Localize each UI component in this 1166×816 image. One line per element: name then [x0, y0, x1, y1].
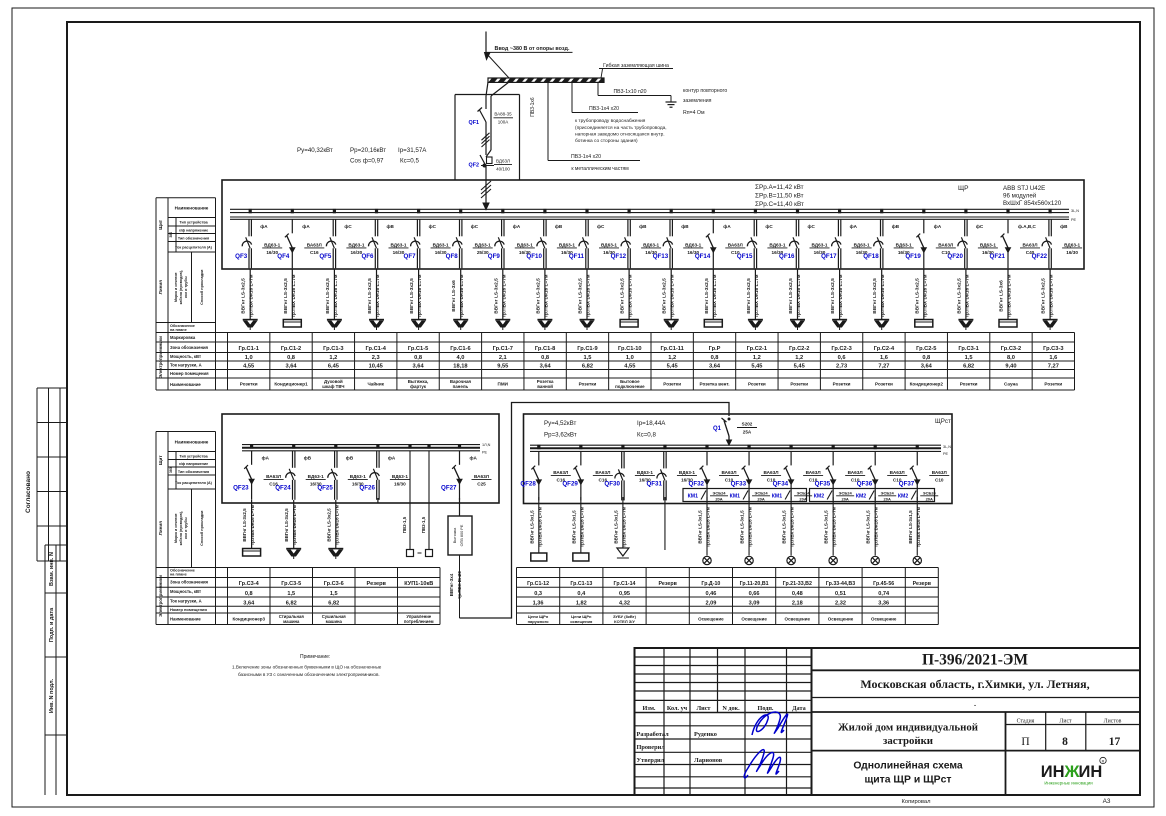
svg-text:тр.ПВХ Dн16 L=7м: тр.ПВХ Dн16 L=7м — [916, 506, 921, 547]
svg-text:Гр.С2-3: Гр.С2-3 — [831, 346, 851, 352]
svg-text:ПВ3-1х4 х20: ПВ3-1х4 х20 — [589, 106, 619, 112]
svg-text:ВВГнг LS-3х2,5: ВВГнг LS-3х2,5 — [872, 278, 878, 314]
svg-text:18,18: 18,18 — [453, 364, 467, 370]
svg-text:ВВГнг LS-3х2,5: ВВГнг LS-3х2,5 — [326, 508, 331, 542]
svg-text:тр.ПВХ Dн16 L=7м: тр.ПВХ Dн16 L=7м — [880, 274, 886, 317]
svg-text:ВВГнг LS-3х6: ВВГнг LS-3х6 — [999, 280, 1005, 312]
svg-text:кол и трубы: кол и трубы — [184, 276, 188, 298]
svg-text:ВВГнг LS-3х2,5: ВВГнг LS-3х2,5 — [535, 278, 541, 314]
svg-text:ВВГнг LS-3х1,5: ВВГнг LS-3х1,5 — [529, 510, 534, 544]
svg-text:ВхШхГ 854х560х120: ВхШхГ 854х560х120 — [1003, 200, 1062, 207]
svg-text:ВД63-1: ВД63-1 — [308, 474, 324, 479]
svg-text:ВА63Л: ВА63Л — [932, 470, 947, 475]
svg-text:Cos ф=0,97: Cos ф=0,97 — [350, 158, 384, 165]
svg-text:тр.ПВХ Dн16 L=7м: тр.ПВХ Dн16 L=7м — [543, 274, 549, 317]
svg-text:Согласовано: Согласовано — [25, 471, 32, 513]
svg-text:0,3: 0,3 — [534, 591, 542, 597]
svg-text:подключение: подключение — [615, 384, 645, 389]
svg-text:ΣРр.В=11,50 кВт: ΣРр.В=11,50 кВт — [755, 193, 804, 200]
svg-text:Зона обозначения: Зона обозначения — [170, 345, 209, 350]
svg-text:Гр.С3-6: Гр.С3-6 — [324, 581, 344, 587]
svg-text:тр.ПВХ Dн16 L=7м: тр.ПВХ Dн16 L=7м — [874, 506, 879, 547]
svg-text:фС: фС — [344, 223, 352, 229]
svg-text:QF16: QF16 — [779, 253, 795, 260]
svg-text:(присоединяется на часть трубо: (присоединяется на часть трубопровода, — [575, 125, 667, 131]
svg-text:фВ: фВ — [1060, 223, 1068, 229]
svg-text:16/30: 16/30 — [1066, 250, 1078, 255]
svg-text:2,73: 2,73 — [836, 364, 847, 370]
svg-text:3,36: 3,36 — [878, 600, 889, 606]
svg-text:фС: фС — [471, 223, 479, 229]
svg-text:QF17: QF17 — [821, 253, 837, 260]
svg-text:КМ2: КМ2 — [814, 494, 824, 500]
svg-text:заземления: заземления — [683, 98, 712, 104]
svg-text:0,8: 0,8 — [414, 355, 422, 361]
svg-text:0,8: 0,8 — [541, 355, 549, 361]
svg-text:Гр.С2-4: Гр.С2-4 — [874, 346, 895, 352]
svg-text:Лист: Лист — [1059, 718, 1072, 724]
svg-text:х/ф напряжение: х/ф напряжение — [179, 229, 208, 233]
svg-text:0,51: 0,51 — [835, 591, 846, 597]
svg-text:Гр.С1-7: Гр.С1-7 — [493, 346, 513, 352]
svg-text:Мощность, кВт: Мощность, кВт — [170, 589, 201, 594]
svg-text:КМ1: КМ1 — [730, 494, 740, 500]
svg-text:QF21: QF21 — [990, 253, 1006, 260]
svg-text:0,8: 0,8 — [711, 355, 719, 361]
svg-text:ВВГнг LS-3х2,5: ВВГнг LS-3х2,5 — [409, 278, 415, 314]
svg-text:машина: машина — [283, 619, 300, 624]
svg-text:0,74: 0,74 — [878, 591, 890, 597]
svg-text:20А: 20А — [841, 497, 848, 502]
svg-text:ВД63-1: ВД63-1 — [433, 242, 449, 247]
svg-text:П-396/2021-ЭМ: П-396/2021-ЭМ — [922, 652, 1028, 669]
svg-text:Гр.С2-2: Гр.С2-2 — [789, 346, 809, 352]
svg-text:фС: фС — [597, 223, 605, 229]
svg-text:Розетки: Розетки — [748, 382, 766, 387]
svg-text:тр.ПВХ Dн16 L=7м: тр.ПВХ Dн16 L=7м — [628, 274, 634, 317]
svg-text:панель: панель — [453, 384, 469, 389]
svg-text:ВВГнг LS-3х2,5: ВВГнг LS-3х2,5 — [367, 278, 373, 314]
svg-text:ВД63-1: ВД63-1 — [348, 242, 364, 247]
svg-text:ВД63-1: ВД63-1 — [350, 474, 366, 479]
svg-text:6,45: 6,45 — [328, 364, 339, 370]
svg-text:ВА63Л: ВА63Л — [595, 470, 610, 475]
svg-text:QF4: QF4 — [277, 253, 290, 260]
svg-text:тр.ПВХ Dн16 L=7м: тр.ПВХ Dн16 L=7м — [790, 506, 795, 547]
svg-text:ВВГнг LS-3х2,5: ВВГнг LS-3х2,5 — [1041, 278, 1047, 314]
svg-text:ВВГнг LS-3х1,5: ВВГнг LS-3х1,5 — [824, 510, 829, 544]
svg-text:ВВГнг LS-3х2,5: ВВГнг LS-3х2,5 — [578, 278, 584, 314]
svg-text:х/ф напряжение: х/ф напряжение — [179, 462, 208, 466]
svg-text:ЭСБ24: ЭСБ24 — [712, 491, 726, 496]
svg-text:Маркировка: Маркировка — [170, 335, 196, 340]
svg-text:фВ: фВ — [387, 223, 395, 229]
svg-text:R: R — [1102, 760, 1105, 764]
svg-text:тр.ПВХ Dн16 L=7м: тр.ПВХ Dн16 L=7м — [796, 274, 802, 317]
svg-text:Гр.С1-6: Гр.С1-6 — [450, 346, 470, 352]
svg-text:Розетки: Розетки — [833, 382, 851, 387]
svg-text:QF15: QF15 — [737, 253, 753, 260]
svg-text:ВВГнг LS-3х1,5: ВВГнг LS-3х1,5 — [740, 510, 745, 544]
svg-text:QF8: QF8 — [446, 253, 459, 260]
svg-text:QF18: QF18 — [863, 253, 879, 260]
svg-text:Розетки: Розетки — [960, 382, 978, 387]
svg-text:Гр.С1-14: Гр.С1-14 — [614, 581, 636, 587]
svg-text:Наименование: Наименование — [170, 382, 201, 387]
svg-text:базисными в УЗ с означенным: базисными в УЗ с означенным обозначением… — [238, 672, 380, 677]
svg-text:Q1: Q1 — [713, 426, 722, 432]
svg-text:Розетки: Розетки — [790, 382, 808, 387]
svg-text:контур повторного: контур повторного — [683, 88, 727, 94]
svg-text:тр.ПВХ Dн16 L=7м: тр.ПВХ Dн16 L=7м — [832, 506, 837, 547]
svg-text:Гр.С1-10: Гр.С1-10 — [618, 346, 642, 352]
svg-text:Гр.С1-9: Гр.С1-9 — [577, 346, 597, 352]
svg-text:0,48: 0,48 — [792, 591, 803, 597]
svg-text:2,18: 2,18 — [792, 600, 803, 606]
svg-text:Однолинейная схема: Однолинейная схема — [853, 761, 963, 772]
svg-text:Розетки: Розетки — [875, 382, 893, 387]
svg-text:QF6: QF6 — [361, 253, 374, 260]
svg-text:2,09: 2,09 — [705, 600, 716, 606]
svg-text:ВА63Л: ВА63Л — [307, 242, 322, 247]
svg-text:тр.ПВХ Dн16 L=7м: тр.ПВХ Dн16 L=7м — [334, 504, 339, 545]
svg-text:Щит: Щит — [158, 219, 163, 230]
svg-text:ВД63-1: ВД63-1 — [685, 242, 701, 247]
svg-text:ABB STJ U42E: ABB STJ U42E — [1003, 185, 1045, 192]
svg-text:фА: фА — [302, 223, 310, 229]
svg-text:тр.ПВХ Dн16 L=7м: тр.ПВХ Dн16 L=7м — [754, 274, 760, 317]
svg-text:96 модулей: 96 модулей — [1003, 193, 1037, 200]
svg-text:тр.ПВХ Dн16 L=7м: тр.ПВХ Dн16 L=7м — [249, 274, 255, 317]
svg-text:ВА88-35: ВА88-35 — [494, 112, 512, 117]
svg-text:КОТЕЛ З/У: КОТЕЛ З/У — [614, 619, 635, 624]
svg-text:QF3: QF3 — [235, 253, 248, 260]
svg-text:Способ прокладки: Способ прокладки — [200, 510, 204, 546]
svg-text:Жилой дом индивидуальной: Жилой дом индивидуальной — [838, 722, 978, 734]
svg-text:тр.ПВХ Dн16 L=7м: тр.ПВХ Dн16 L=7м — [250, 504, 255, 545]
svg-text:QF10: QF10 — [526, 253, 542, 260]
svg-text:ботинка со стороны здания): ботинка со стороны здания) — [575, 138, 638, 144]
svg-text:фВ: фВ — [304, 454, 312, 460]
svg-text:ВД63-1: ВД63-1 — [637, 470, 653, 475]
svg-text:Ларионов: Ларионов — [694, 757, 723, 764]
svg-text:3,64: 3,64 — [540, 364, 552, 370]
svg-text:ВА63Л: ВА63Л — [721, 470, 736, 475]
svg-text:0,8: 0,8 — [287, 355, 295, 361]
svg-text:1,6: 1,6 — [880, 355, 888, 361]
svg-text:Электроприемники: Электроприемники — [158, 575, 163, 617]
svg-text:ВВГнг LS-3х2,5: ВВГнг LS-3х2,5 — [325, 278, 331, 314]
svg-text:Гр.Р: Гр.Р — [709, 346, 721, 352]
svg-text:6,82: 6,82 — [963, 364, 974, 370]
svg-text:4,0: 4,0 — [456, 355, 464, 361]
svg-text:ЭСБ24: ЭСБ24 — [923, 491, 937, 496]
svg-text:С16: С16 — [310, 250, 319, 255]
svg-text:ВВГнг LS-3х2,5: ВВГнг LS-3х2,5 — [242, 508, 247, 542]
svg-text:2,3: 2,3 — [372, 355, 380, 361]
svg-text:тр.ПВХ Dн16 L=7м: тр.ПВХ Dн16 L=7м — [670, 274, 676, 317]
svg-text:Гр.С1-11: Гр.С1-11 — [661, 346, 684, 352]
svg-text:0,8: 0,8 — [245, 591, 253, 597]
svg-text:Подп. и дата: Подп. и дата — [49, 607, 55, 642]
svg-text:фА: фА — [388, 454, 396, 460]
svg-text:8: 8 — [1062, 736, 1068, 748]
svg-text:тр.ПВХ Dн16 L=7м: тр.ПВХ Dн16 L=7м — [748, 506, 753, 547]
svg-text:PE: PE — [482, 451, 488, 455]
svg-text:Гр.21-33,В2: Гр.21-33,В2 — [783, 581, 812, 587]
svg-text:фартук: фартук — [410, 384, 427, 389]
svg-text:ВА63Л: ВА63Л — [848, 470, 863, 475]
svg-text:застройки: застройки — [883, 735, 933, 747]
svg-text:Ж: Ж — [1064, 763, 1080, 781]
svg-text:QF33: QF33 — [731, 481, 747, 488]
svg-text:QF31: QF31 — [646, 481, 662, 488]
svg-text:ВД63-1: ВД63-1 — [601, 242, 617, 247]
svg-text:тр.ПВХ Dн16 L=7м: тр.ПВХ Dн16 L=7м — [579, 506, 584, 547]
svg-text:ВА63Л: ВА63Л — [806, 470, 821, 475]
svg-text:ЩРст: ЩРст — [935, 418, 951, 425]
svg-text:фА: фА — [260, 223, 268, 229]
svg-text:Тип устройства: Тип устройства — [179, 221, 208, 225]
svg-text:Тип обозначения: Тип обозначения — [178, 236, 209, 240]
svg-text:Розетки: Розетки — [240, 382, 258, 387]
svg-text:3,09: 3,09 — [749, 600, 760, 606]
svg-text:тр.ПВХ Dн16 L=7м: тр.ПВХ Dн16 L=7м — [1007, 274, 1013, 317]
svg-text:4,32: 4,32 — [619, 600, 630, 606]
svg-text:0,46: 0,46 — [705, 591, 716, 597]
svg-text:фА: фА — [934, 223, 942, 229]
svg-text:Чайник: Чайник — [367, 381, 384, 387]
svg-text:1,6: 1,6 — [1049, 355, 1057, 361]
svg-text:Марка и сечение: Марка и сечение — [174, 272, 178, 302]
svg-text:0,8: 0,8 — [922, 355, 930, 361]
svg-text:8,0: 8,0 — [1007, 355, 1015, 361]
svg-text:Копировал: Копировал — [901, 799, 930, 805]
svg-text:КМ2: КМ2 — [898, 494, 908, 500]
svg-text:2,32: 2,32 — [835, 600, 846, 606]
svg-text:фС: фС — [429, 223, 437, 229]
svg-text:С25: С25 — [477, 481, 486, 486]
svg-text:ВВГнг LS-3х2,5: ВВГнг LS-3х2,5 — [620, 278, 626, 314]
svg-text:А3: А3 — [1103, 798, 1111, 805]
svg-text:ВД63-1: ВД63-1 — [264, 242, 280, 247]
svg-text:ВА63Л: ВА63Л — [938, 242, 953, 247]
svg-text:Номер помещения: Номер помещения — [170, 371, 209, 376]
svg-text:Гр.С3-1: Гр.С3-1 — [958, 346, 978, 352]
svg-text:20А: 20А — [757, 497, 764, 502]
svg-text:9,55: 9,55 — [497, 364, 508, 370]
svg-text:ВД63-1: ВД63-1 — [517, 242, 533, 247]
svg-text:ВВГнг-3х4: ВВГнг-3х4 — [449, 573, 454, 596]
svg-text:ПВ3-1х4 х20: ПВ3-1х4 х20 — [571, 154, 601, 160]
svg-text:Электроприемники: Электроприемники — [158, 336, 163, 378]
svg-text:Проверил: Проверил — [637, 744, 666, 751]
svg-text:QF12: QF12 — [611, 253, 627, 260]
svg-text:ЩР: ЩР — [958, 185, 969, 192]
svg-text:ВВГнг LS-3х2,5: ВВГнг LS-3х2,5 — [830, 278, 836, 314]
svg-text:С10: С10 — [935, 478, 944, 483]
svg-text:ВВГнг LS-3х2,5: ВВГнг LS-3х2,5 — [493, 278, 499, 314]
svg-text:ВД63-1: ВД63-1 — [559, 242, 575, 247]
svg-text:ВВГнг LS-3х1,5: ВВГнг LS-3х1,5 — [866, 510, 871, 544]
svg-text:ИН: ИН — [1079, 763, 1103, 781]
svg-text:кабеля (проводов),: кабеля (проводов), — [179, 511, 183, 545]
svg-text:фВ: фВ — [681, 223, 689, 229]
svg-text:1.Включение зоны обозначенных: 1.Включение зоны обозначенных буквенными… — [232, 665, 382, 670]
svg-text:ЭСБ24: ЭСБ24 — [797, 491, 811, 496]
svg-text:тр.ПВХ Dн20: тр.ПВХ Dн20 — [457, 571, 462, 599]
svg-text:тр.ПВХ Dн16 L=7м: тр.ПВХ Dн16 L=7м — [964, 274, 970, 317]
svg-text:20А: 20А — [926, 497, 933, 502]
svg-text:Резерв: Резерв — [367, 581, 387, 587]
svg-text:Наименование: Наименование — [175, 440, 209, 445]
svg-text:ВА63Л: ВА63Л — [474, 474, 489, 479]
svg-text:фВ: фВ — [639, 223, 647, 229]
svg-text:16/30: 16/30 — [394, 481, 406, 486]
svg-text:Ток нагрузки, А: Ток нагрузки, А — [170, 599, 202, 604]
svg-text:QF7: QF7 — [404, 253, 417, 260]
svg-text:Кс=0,8: Кс=0,8 — [637, 432, 656, 439]
svg-text:Освещение: Освещение — [785, 617, 811, 622]
svg-text:Гр.С1-4: Гр.С1-4 — [366, 346, 387, 352]
svg-text:фВ: фВ — [346, 454, 354, 460]
svg-text:1,82: 1,82 — [576, 600, 587, 606]
svg-text:Марка и сечение: Марка и сечение — [174, 513, 178, 543]
svg-text:Гр.С1-2: Гр.С1-2 — [281, 346, 301, 352]
svg-text:ВВГнг LS-3х1,5: ВВГнг LS-3х1,5 — [782, 510, 787, 544]
svg-text:ЭСБ24: ЭСБ24 — [839, 491, 853, 496]
svg-text:Мощность, кВт: Мощность, кВт — [170, 354, 201, 359]
svg-text:Гр.Д-10: Гр.Д-10 — [701, 581, 720, 587]
svg-text:Вытяжка: Вытяжка — [453, 527, 457, 543]
svg-text:Резерв: Резерв — [659, 581, 678, 587]
svg-text:0,6: 0,6 — [838, 355, 846, 361]
svg-text:QF24: QF24 — [275, 484, 291, 491]
svg-text:380: 380 — [169, 467, 173, 473]
svg-text:7,27: 7,27 — [878, 364, 889, 370]
svg-text:Гр.С1-1: Гр.С1-1 — [238, 346, 258, 352]
svg-text:Ввод ~380 В от опоры возд.: Ввод ~380 В от опоры возд. — [495, 46, 570, 52]
svg-text:ВА63Л: ВА63Л — [553, 470, 568, 475]
svg-text:Гр.С1-3: Гр.С1-3 — [323, 346, 343, 352]
svg-text:ВД63-1: ВД63-1 — [980, 242, 996, 247]
svg-text:ВВГнг LS-3х1,5: ВВГнг LS-3х1,5 — [571, 510, 576, 544]
svg-text:3,64: 3,64 — [709, 364, 721, 370]
svg-text:ВВГнг LS-3х2,5: ВВГнг LS-3х2,5 — [662, 278, 668, 314]
svg-text:КУП1-10кВ: КУП1-10кВ — [404, 581, 433, 587]
svg-text:QF9: QF9 — [488, 253, 501, 260]
svg-text:к металлическим частям: к металлическим частям — [571, 166, 629, 172]
svg-text:ВД63Л: ВД63Л — [496, 159, 510, 164]
svg-text:QF27: QF27 — [441, 484, 457, 491]
svg-text:потреблением: потреблением — [404, 619, 434, 624]
svg-text:тр.ПВХ Dн16 L=7м: тр.ПВХ Dн16 L=7м — [501, 274, 507, 317]
svg-text:ПВ3-1х6: ПВ3-1х6 — [530, 97, 536, 117]
svg-text:тр.ПВХ Dн16 L=7м: тр.ПВХ Dн16 L=7м — [586, 274, 592, 317]
svg-text:Номер помещения: Номер помещения — [170, 607, 207, 612]
svg-text:ВВГнг LS-3х1,5: ВВГнг LS-3х1,5 — [613, 510, 618, 544]
svg-text:Розетка вент.: Розетка вент. — [700, 382, 730, 387]
svg-text:освещения: освещения — [570, 619, 593, 624]
svg-text:Гр.45-56: Гр.45-56 — [873, 581, 894, 587]
svg-text:QF34: QF34 — [773, 481, 789, 488]
svg-text:Розетки: Розетки — [1044, 382, 1062, 387]
svg-text:Гр.С3-2: Гр.С3-2 — [1001, 346, 1021, 352]
svg-text:QF25: QF25 — [317, 484, 333, 491]
svg-text:ванной: ванной — [537, 384, 553, 389]
svg-text:фС: фС — [765, 223, 773, 229]
svg-text:Освещение: Освещение — [741, 617, 767, 622]
svg-text:Рр=20,16кВт: Рр=20,16кВт — [350, 147, 386, 154]
svg-text:ΣРр.А=11,42 кВт: ΣРр.А=11,42 кВт — [755, 184, 804, 191]
svg-text:1,36: 1,36 — [533, 600, 544, 606]
svg-text:QF22: QF22 — [1032, 253, 1048, 260]
svg-text:Освещение: Освещение — [828, 617, 854, 622]
svg-text:5,45: 5,45 — [667, 364, 678, 370]
svg-text:Освещение: Освещение — [698, 617, 724, 622]
svg-text:40/100: 40/100 — [496, 167, 510, 172]
svg-text:Iр=31,57А: Iр=31,57А — [398, 147, 427, 154]
svg-text:ВВГнг LS-3х2,5: ВВГнг LS-3х2,5 — [788, 278, 794, 314]
svg-text:Ру=40,32кВт: Ру=40,32кВт — [297, 147, 333, 154]
svg-text:-: - — [974, 701, 977, 709]
svg-text:1,5: 1,5 — [584, 355, 592, 361]
svg-text:шкаф ТВЧ: шкаф ТВЧ — [322, 384, 344, 389]
svg-text:ВА63Л: ВА63Л — [728, 242, 743, 247]
svg-text:Ток расцепителя (А): Ток расцепителя (А) — [175, 481, 213, 485]
svg-text:Утвердил: Утвердил — [637, 757, 665, 764]
svg-text:ВД63-1: ВД63-1 — [1064, 242, 1080, 247]
svg-text:Кондиционер3: Кондиционер3 — [232, 617, 265, 622]
svg-text:PE: PE — [1071, 218, 1077, 222]
svg-text:ВВГнг LS-3х2,5: ВВГнг LS-3х2,5 — [284, 508, 289, 542]
svg-text:ВД63-1: ВД63-1 — [811, 242, 827, 247]
svg-text:Гр.С3-5: Гр.С3-5 — [281, 581, 301, 587]
svg-text:Rп=4 Ом: Rп=4 Ом — [683, 110, 705, 116]
svg-text:QF1: QF1 — [469, 120, 479, 126]
svg-text:тр.ПВХ Dн16 L=7м: тр.ПВХ Dн16 L=7м — [291, 274, 297, 317]
svg-text:ВД63-1: ВД63-1 — [896, 242, 912, 247]
svg-text:ВД63-1: ВД63-1 — [475, 242, 491, 247]
svg-text:Кондиционер2: Кондиционер2 — [910, 382, 944, 387]
svg-text:Лист: Лист — [697, 705, 711, 712]
svg-text:Инженерные инновации: Инженерные инновации — [1044, 781, 1093, 786]
svg-text:ОПВ 800 РЕ: ОПВ 800 РЕ — [460, 524, 464, 546]
svg-text:Линия: Линия — [158, 521, 163, 536]
svg-text:1,5: 1,5 — [965, 355, 973, 361]
svg-text:ВВГнг LS-3х2,5: ВВГнг LS-3х2,5 — [746, 278, 752, 314]
svg-text:Гр.С3-4: Гр.С3-4 — [239, 581, 260, 587]
svg-text:Листов: Листов — [1104, 718, 1122, 724]
svg-text:3L,N: 3L,N — [943, 445, 951, 449]
svg-text:Розетки: Розетки — [663, 382, 681, 387]
svg-text:Освещение: Освещение — [871, 617, 897, 622]
svg-text:3,64: 3,64 — [921, 364, 933, 370]
svg-text:17: 17 — [1109, 736, 1121, 748]
svg-text:QF30: QF30 — [604, 481, 620, 488]
svg-text:QF23: QF23 — [233, 484, 249, 491]
svg-text:QF14: QF14 — [695, 253, 711, 260]
svg-text:напорная заведомо относящаяся: напорная заведомо относящаяся внутр. — [575, 133, 665, 138]
svg-text:6,82: 6,82 — [286, 600, 297, 606]
svg-text:ВВГнг LS-3х2,5: ВВГнг LS-3х2,5 — [956, 278, 962, 314]
svg-text:тр.ПВХ Dн16 L=7м: тр.ПВХ Dн16 L=7м — [375, 274, 381, 317]
svg-text:QF29: QF29 — [562, 481, 578, 488]
svg-text:Примечание:: Примечание: — [300, 654, 330, 660]
svg-text:на плане: на плане — [170, 573, 187, 577]
svg-text:ИН: ИН — [1041, 763, 1065, 781]
svg-text:3,64: 3,64 — [413, 364, 425, 370]
